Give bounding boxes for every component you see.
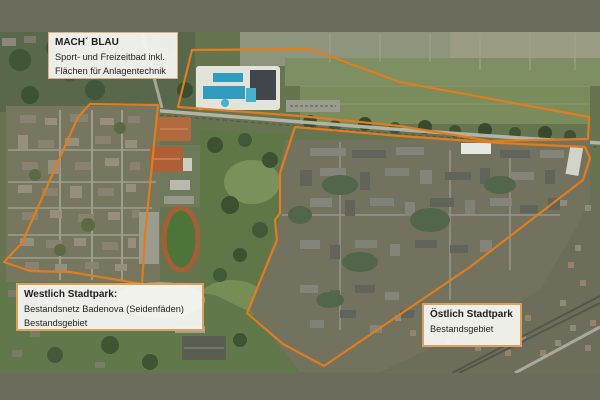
label-mach-blau-line2: Flächen für Anlagentechnik [55, 64, 171, 78]
label-east-title: Östlich Stadtpark [430, 308, 514, 322]
label-westlich-stadtpark: Westlich Stadtpark: Bestandsnetz Badenov… [16, 283, 204, 331]
label-oestlich-stadtpark: Östlich Stadtpark Bestandsgebiet [422, 303, 522, 347]
label-west-line2: Bestandsgebiet [24, 316, 196, 330]
west-residential [6, 106, 160, 282]
label-mach-blau-line1: Sport- und Freizeitbad inkl. [55, 50, 171, 64]
label-west-line1: Bestandsnetz Badenova (Seidenfäden) [24, 302, 196, 316]
label-mach-blau-title: MACH´ BLAU [55, 36, 171, 50]
slide: MACH´ BLAU Sport- und Freizeitbad inkl. … [0, 0, 600, 400]
label-east-line1: Bestandsgebiet [430, 322, 514, 336]
white-roof-building [461, 143, 491, 154]
label-west-title: Westlich Stadtpark: [24, 288, 196, 302]
label-mach-blau: MACH´ BLAU Sport- und Freizeitbad inkl. … [48, 32, 178, 79]
